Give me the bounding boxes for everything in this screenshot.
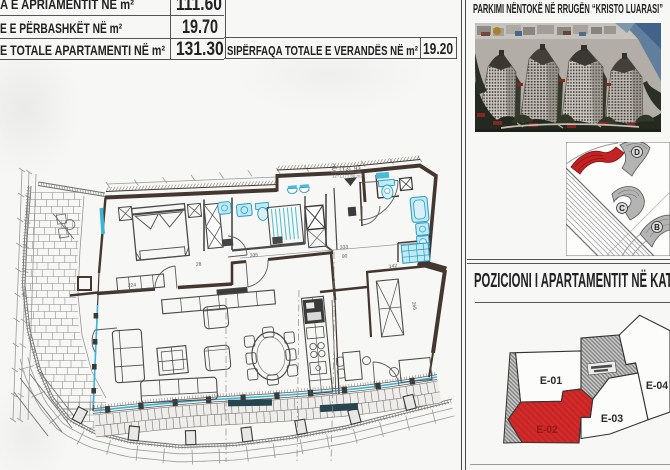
svg-text:B: B [654,223,660,232]
svg-text:E-03: E-03 [601,413,623,425]
svg-text:C: C [619,204,625,213]
svg-text:142: 142 [389,263,398,270]
svg-text:E_(Y3)_93: E_(Y3)_93 [332,167,361,173]
svg-text:335: 335 [250,252,259,259]
svg-text:333: 333 [340,244,349,251]
svg-text:D: D [634,148,640,157]
svg-text:90: 90 [342,254,348,260]
svg-text:12+1371,80 m2: 12+1371,80 m2 [332,174,363,179]
svg-text:224: 224 [128,282,137,289]
svg-text:E-04: E-04 [646,380,669,392]
svg-text:28: 28 [196,262,202,268]
svg-text:265: 265 [410,301,417,310]
svg-text:E-02: E-02 [536,424,557,436]
svg-text:E-01: E-01 [540,375,562,387]
